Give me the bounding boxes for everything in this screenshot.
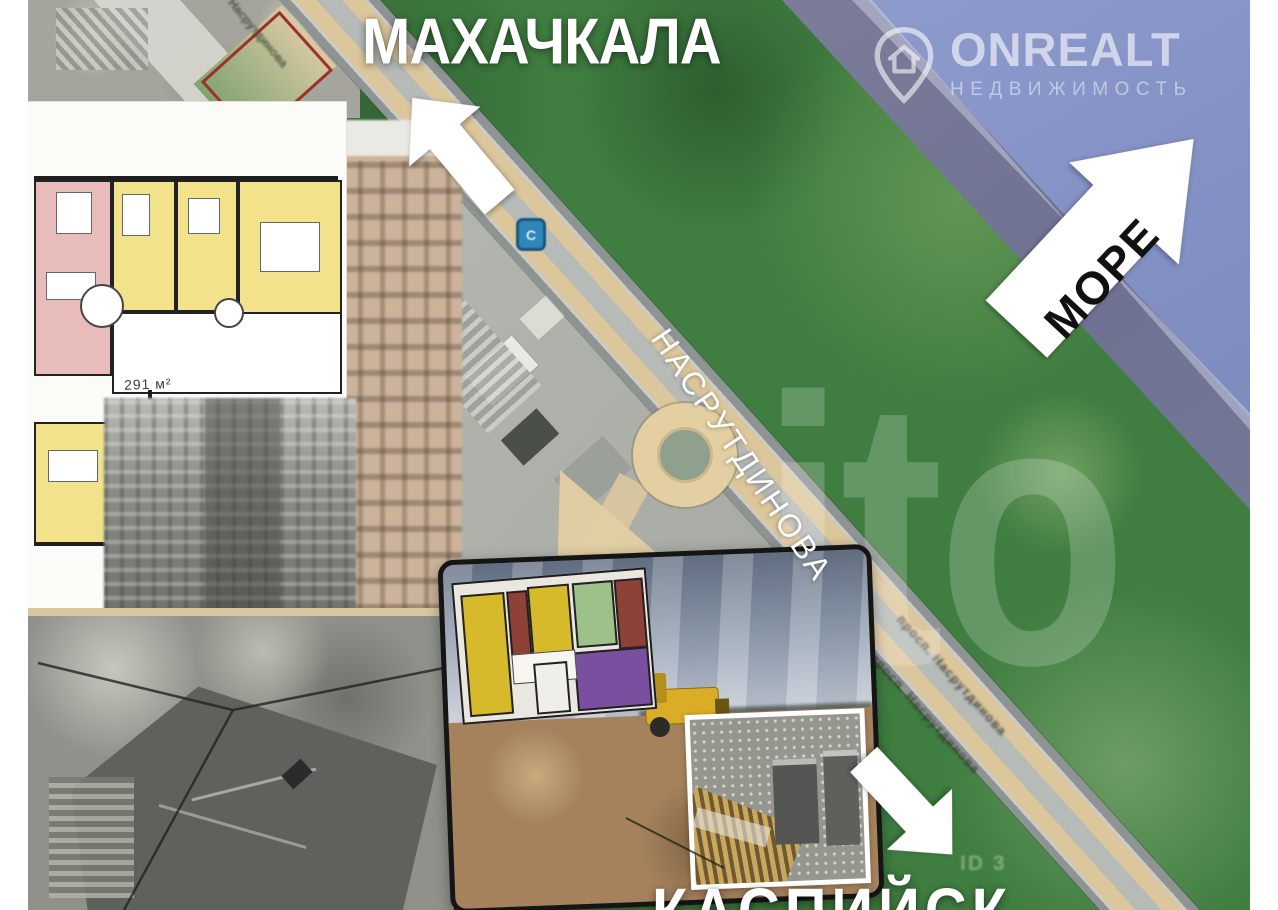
plan-furniture [122,194,150,236]
listing-map-image: Насрутдинова просп. Насрутдинова просп. … [0,0,1278,910]
plan-furniture [260,222,320,272]
plan-room-yellow [34,422,112,544]
logo-text: ONREALT НЕДВИЖИМОСТЬ [950,26,1193,101]
inset-room-white [532,661,571,714]
plan-stamp-circle [214,298,244,328]
inset-room-maroon [613,578,647,650]
tower-silhouette [205,398,281,614]
survey-lines [28,608,454,910]
location-pin-house-icon [872,26,936,104]
logo-subtitle: НЕДВИЖИМОСТЬ [950,79,1193,101]
aerial-plot-photo [28,608,457,910]
construction-collage-card [437,544,884,910]
concrete-block-building [773,758,820,845]
plan-stamp-circle [80,284,124,328]
plan-room-pink [34,180,112,376]
bulldozer-wheel [649,716,670,737]
bus-stop-icon: C [516,218,546,251]
inset-room-yellow [460,592,514,718]
city-label-kaspiysk: КАСПИЙСК [652,874,1012,910]
inset-floor-plan [451,567,657,724]
inset-room-purple [573,646,652,711]
plan-table [48,450,98,482]
buildings-render-photo [104,398,356,614]
onrealt-logo: ONREALT НЕДВИЖИМОСТЬ [872,26,1193,104]
listing-id-watermark: ID 3 [960,852,1007,876]
white-border-right [1250,0,1278,910]
parking-rows [56,8,148,70]
inset-room-green [572,580,617,648]
plan-room-yellow [112,180,176,312]
city-label-makhachkala: МАХАЧКАЛА [362,4,721,79]
plan-furniture [188,198,220,234]
white-border-left [0,0,28,910]
plan-furniture [56,192,92,234]
roundabout-island [657,427,713,483]
logo-title: ONREALT [950,26,1193,73]
plan-room-yellow [176,180,238,312]
plan-area-label: 291 м² [124,375,172,393]
